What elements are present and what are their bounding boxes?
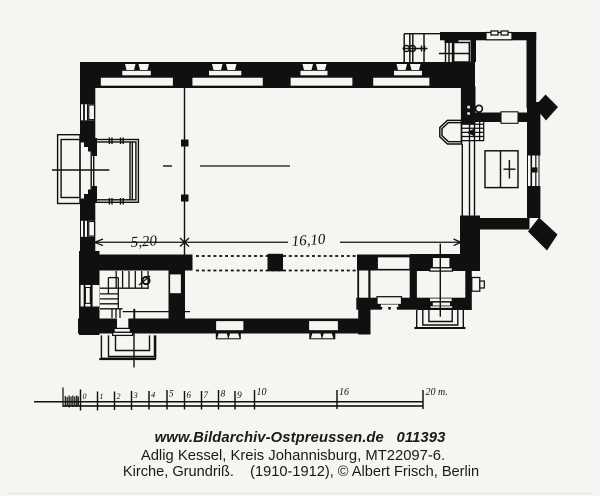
svg-text:2: 2 [117,392,121,401]
svg-text:20 m.: 20 m. [426,387,448,398]
svg-text:7: 7 [204,390,209,400]
svg-text:9: 9 [237,391,242,401]
svg-text:5: 5 [169,389,174,399]
svg-text:6: 6 [187,390,192,400]
svg-text:16: 16 [339,387,349,398]
svg-text:16,10: 16,10 [291,232,326,250]
svg-text:1: 1 [100,392,104,401]
svg-text:8: 8 [221,390,226,400]
svg-text:3: 3 [133,390,138,400]
svg-text:10: 10 [257,387,267,398]
svg-text:0: 0 [83,392,87,401]
svg-text:5,20: 5,20 [130,233,158,251]
